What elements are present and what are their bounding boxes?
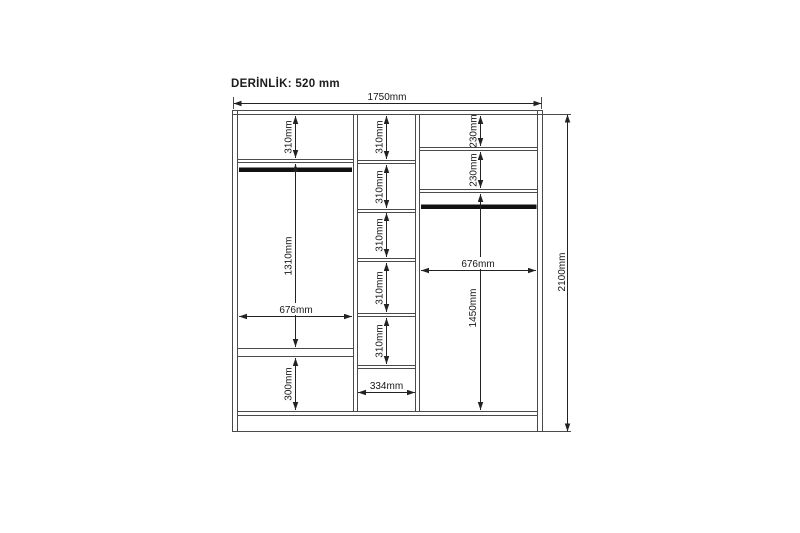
dimension-label-group: 310mm [375, 218, 386, 251]
technical-drawing-page: DERİNLİK: 520 mm [0, 0, 800, 533]
dimension-label-group: 310mm [375, 324, 386, 357]
dimension-label: 1450mm [468, 289, 479, 328]
dimension-label-group: 310mm [284, 120, 295, 153]
dimension-label: 310mm [375, 218, 386, 251]
dimension-label: 676mm [461, 259, 494, 270]
dimension-label-group: 310mm [375, 271, 386, 304]
dimension-label: 300mm [284, 367, 295, 400]
dimension-label: 1310mm [284, 237, 295, 276]
dimension-label-group: 310mm [375, 170, 386, 203]
dimension-label-group: 230mm [469, 153, 480, 186]
dimension-label-group: 310mm [375, 120, 386, 153]
dimension-label: 2100mm [557, 253, 568, 292]
dimension-label: 310mm [284, 120, 295, 153]
dimension-label: 310mm [375, 324, 386, 357]
wardrobe-diagram: 1750mm 2100mm 310mm 1310mm 676mm 300mm 3… [0, 0, 800, 533]
dimension-label: 310mm [375, 170, 386, 203]
dimension-label-group: 1310mm [284, 237, 295, 276]
dimension-label-group: 230mm [469, 114, 480, 147]
dimension-label-group: 2100mm [557, 253, 568, 292]
dimension-label-group: 300mm [284, 367, 295, 400]
dimension-label: 310mm [375, 271, 386, 304]
dimension-label-group: 1450mm [468, 289, 479, 328]
dimension-label: 310mm [375, 120, 386, 153]
dimension-label: 1750mm [368, 92, 407, 103]
dimension-label: 676mm [279, 305, 312, 316]
right-hanging-rail [421, 205, 537, 210]
dimension-label: 334mm [370, 381, 403, 392]
dimension-label: 230mm [469, 153, 480, 186]
dimension-labels: 1750mm 2100mm 310mm 1310mm 676mm 300mm 3… [279, 92, 568, 401]
dimension-label: 230mm [469, 114, 480, 147]
